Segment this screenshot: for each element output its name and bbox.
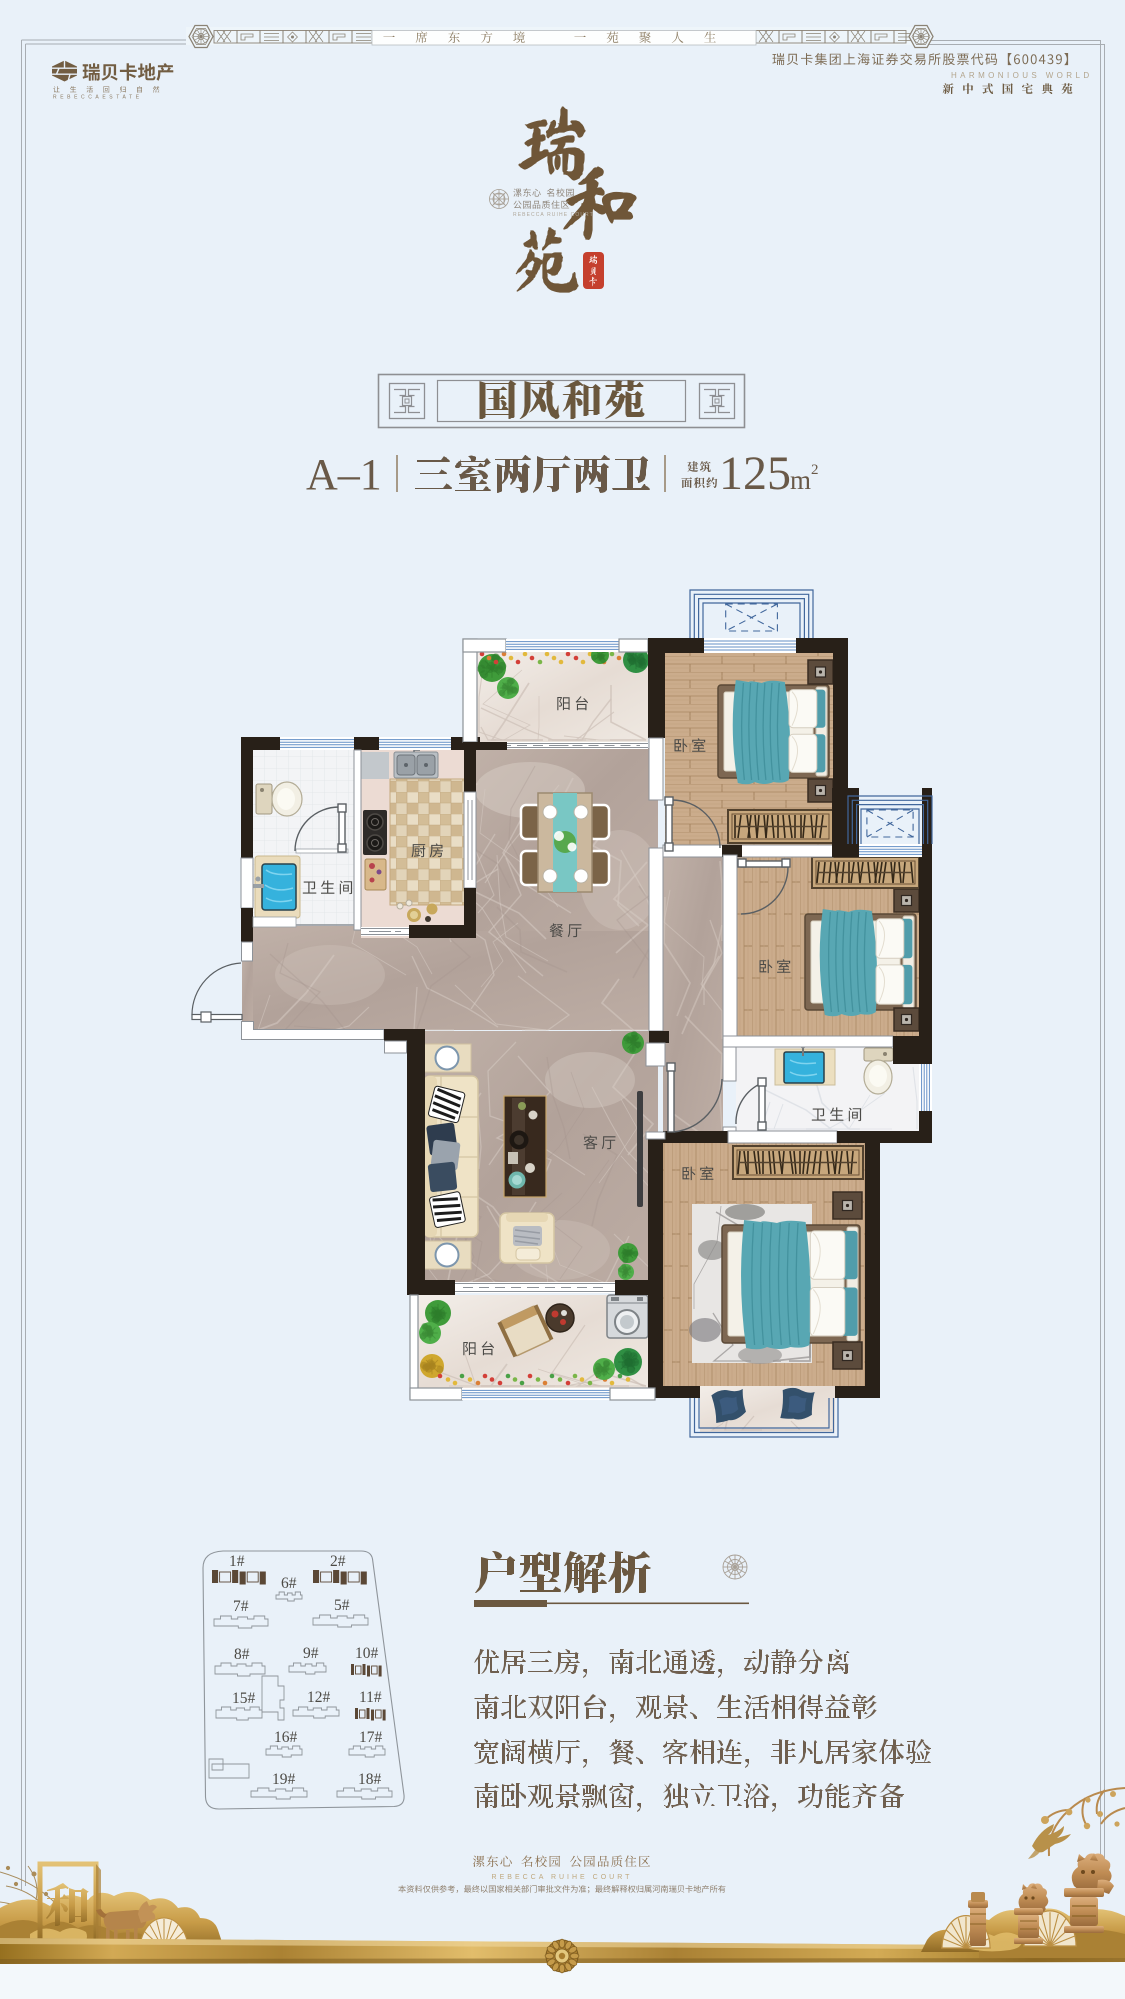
svg-text:REBECCA RUIHE COURT: REBECCA RUIHE COURT — [492, 1874, 633, 1881]
